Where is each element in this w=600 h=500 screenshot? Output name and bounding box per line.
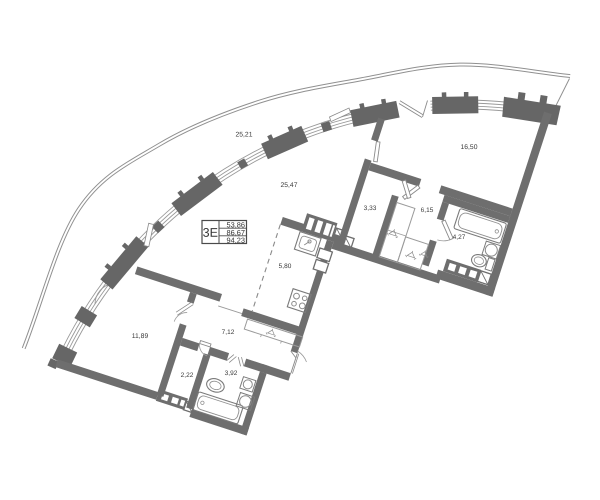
svg-text:11,89: 11,89 (132, 333, 149, 340)
svg-text:16,50: 16,50 (460, 144, 477, 151)
svg-text:94,23: 94,23 (226, 236, 245, 245)
svg-text:3,92: 3,92 (225, 370, 238, 377)
svg-text:5,80: 5,80 (279, 263, 292, 270)
svg-text:3E: 3E (203, 226, 218, 240)
svg-text:4,27: 4,27 (453, 234, 466, 241)
svg-text:7,12: 7,12 (222, 329, 235, 336)
svg-text:3,33: 3,33 (364, 205, 377, 212)
svg-text:6,15: 6,15 (421, 207, 434, 214)
svg-text:2,22: 2,22 (181, 372, 194, 379)
svg-text:25,21: 25,21 (235, 131, 252, 138)
svg-text:25,47: 25,47 (280, 182, 297, 189)
